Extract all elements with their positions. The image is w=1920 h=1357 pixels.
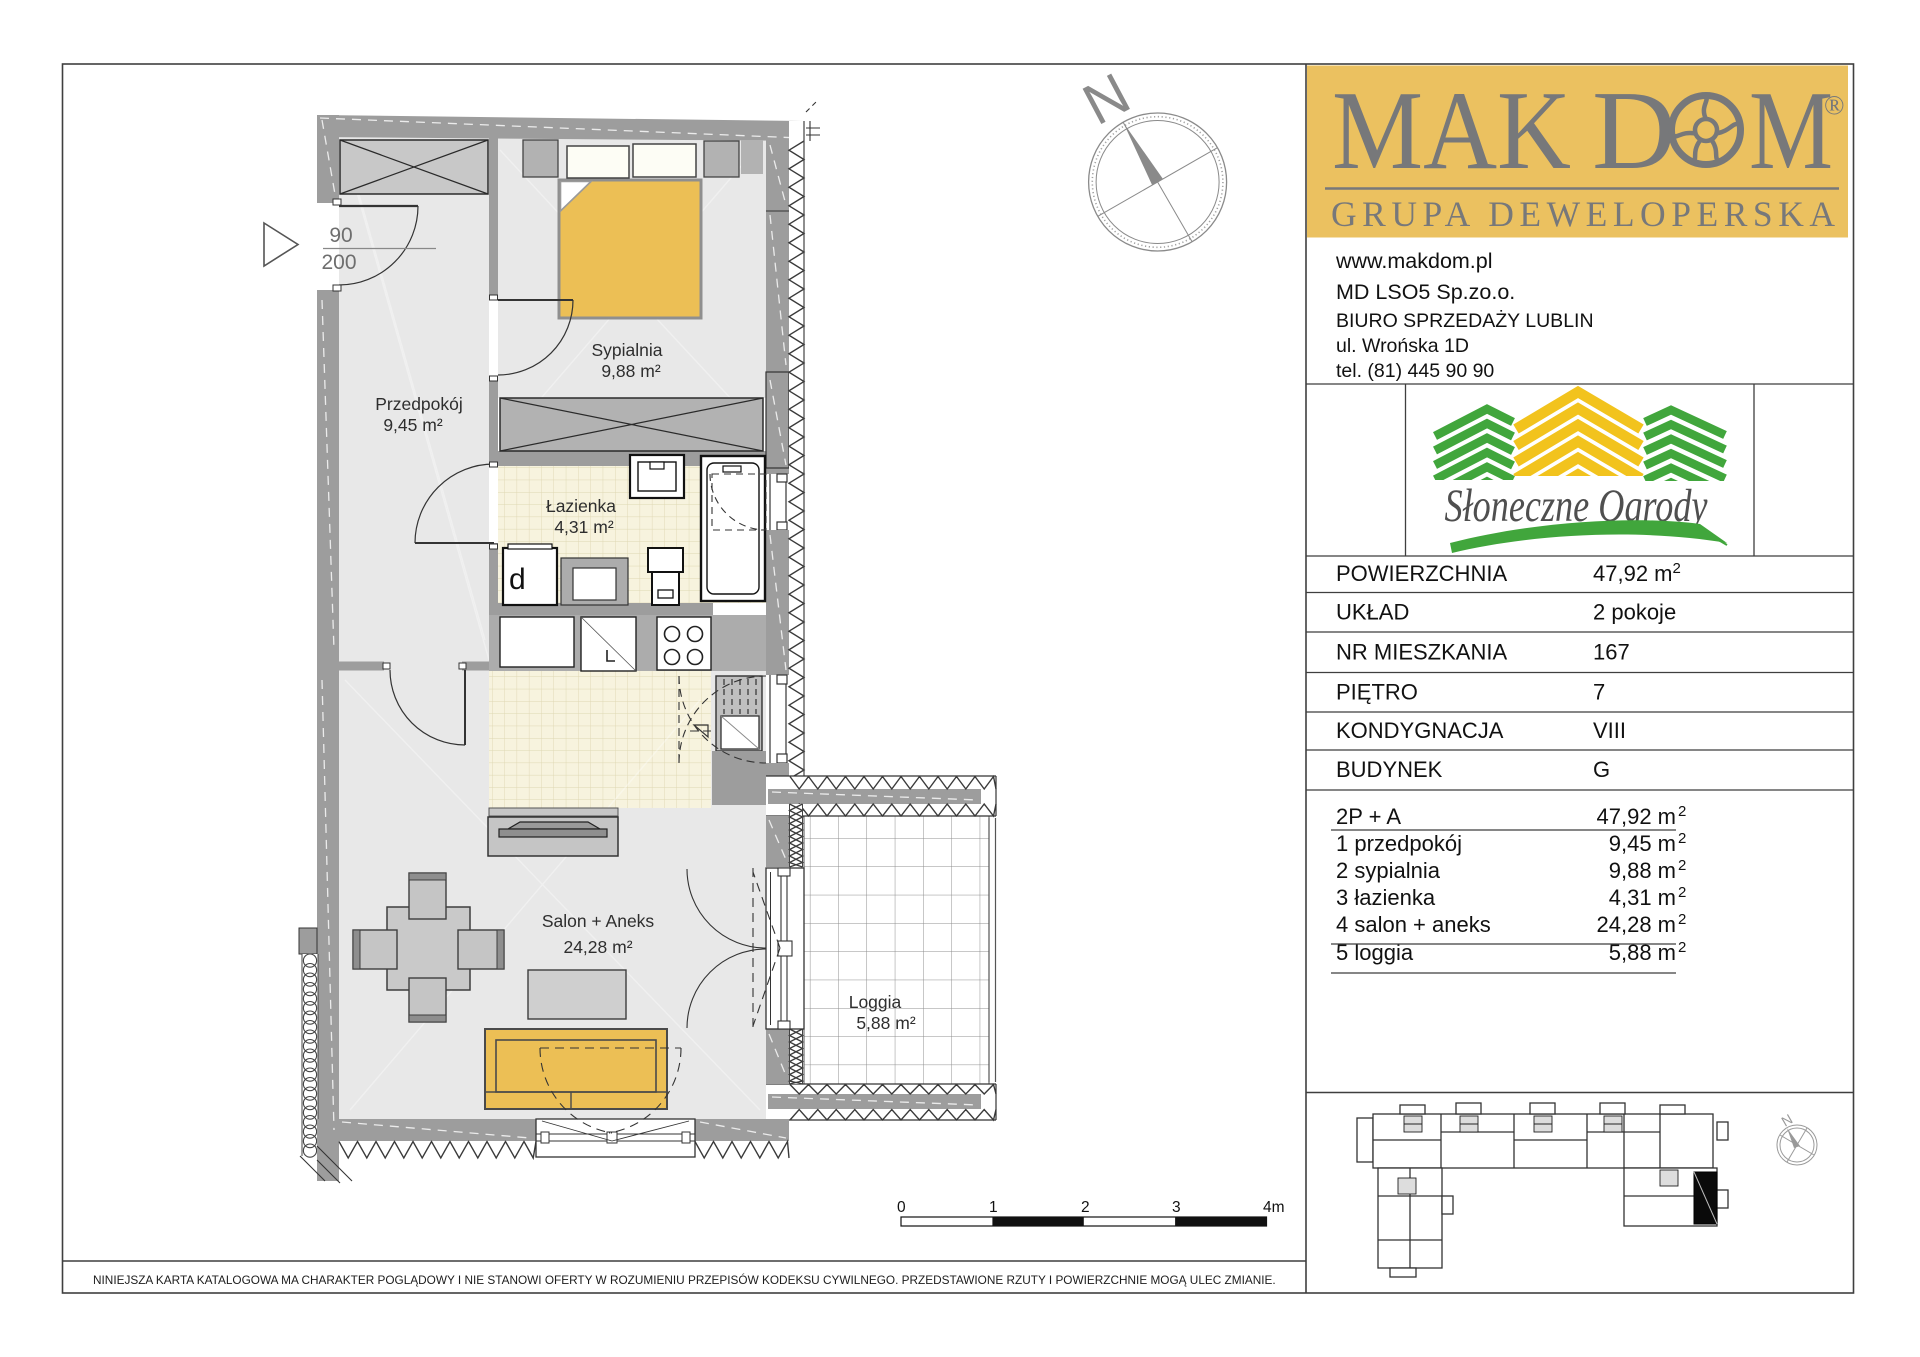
svg-text:N: N <box>1073 61 1141 138</box>
svg-text:Przedpokój: Przedpokój <box>375 394 463 414</box>
svg-text:1: 1 <box>989 1199 998 1216</box>
svg-text:2: 2 <box>1678 857 1686 874</box>
svg-text:tel. (81) 445 90 90: tel. (81) 445 90 90 <box>1336 360 1494 382</box>
svg-text:90: 90 <box>329 224 352 247</box>
svg-text:www.makdom.pl: www.makdom.pl <box>1335 249 1493 273</box>
svg-text:200: 200 <box>321 251 356 274</box>
svg-text:5,88 m²: 5,88 m² <box>856 1013 915 1033</box>
svg-text:24,28 m: 24,28 m <box>1597 912 1677 937</box>
svg-text:ul. Wrońska 1D: ul. Wrońska 1D <box>1336 335 1469 357</box>
svg-text:BUDYNEK: BUDYNEK <box>1336 757 1443 782</box>
svg-text:BIURO SPRZEDAŻY LUBLIN: BIURO SPRZEDAŻY LUBLIN <box>1336 309 1594 332</box>
svg-text:0: 0 <box>897 1199 906 1216</box>
svg-text:PIĘTRO: PIĘTRO <box>1336 680 1418 705</box>
svg-text:d: d <box>509 563 526 596</box>
svg-text:2: 2 <box>1678 884 1686 901</box>
svg-text:3 łazienka: 3 łazienka <box>1336 885 1436 910</box>
svg-text:Loggia: Loggia <box>849 992 902 1012</box>
svg-text:2: 2 <box>1678 911 1686 928</box>
svg-text:47,92 m2: 47,92 m2 <box>1593 560 1681 586</box>
svg-text:24,28 m²: 24,28 m² <box>563 937 632 957</box>
svg-text:4,31 m: 4,31 m <box>1609 885 1676 910</box>
svg-text:4m: 4m <box>1263 1199 1285 1216</box>
svg-text:1 przedpokój: 1 przedpokój <box>1336 831 1462 856</box>
svg-text:D: D <box>1592 69 1676 193</box>
svg-text:VIII: VIII <box>1593 718 1626 743</box>
svg-text:N: N <box>1779 1111 1796 1130</box>
svg-text:Łazienka: Łazienka <box>546 496 616 516</box>
svg-text:2: 2 <box>1678 830 1686 847</box>
svg-text:167: 167 <box>1593 640 1630 665</box>
svg-text:4,31 m²: 4,31 m² <box>554 517 613 537</box>
svg-text:9,88 m²: 9,88 m² <box>601 361 660 381</box>
svg-text:MD LSO5 Sp.zo.o.: MD LSO5 Sp.zo.o. <box>1336 280 1515 304</box>
svg-text:47,92 m: 47,92 m <box>1597 804 1677 829</box>
svg-text:7: 7 <box>1593 680 1605 705</box>
svg-text:9,45 m²: 9,45 m² <box>383 415 442 435</box>
svg-text:2P + A: 2P + A <box>1336 804 1401 829</box>
svg-text:4 salon + aneks: 4 salon + aneks <box>1336 912 1491 937</box>
svg-text:Salon + Aneks: Salon + Aneks <box>542 911 655 931</box>
svg-text:®: ® <box>1824 90 1845 120</box>
svg-text:2: 2 <box>1081 1199 1090 1216</box>
svg-text:2: 2 <box>1678 939 1686 956</box>
svg-text:2: 2 <box>1678 803 1686 820</box>
svg-text:UKŁAD: UKŁAD <box>1336 600 1409 625</box>
svg-text:9,45 m: 9,45 m <box>1609 831 1676 856</box>
svg-text:Sypialnia: Sypialnia <box>591 340 662 360</box>
svg-text:2 sypialnia: 2 sypialnia <box>1336 858 1441 883</box>
svg-text:POWIERZCHNIA: POWIERZCHNIA <box>1336 561 1507 586</box>
svg-text:NR MIESZKANIA: NR MIESZKANIA <box>1336 640 1507 665</box>
svg-text:9,88 m: 9,88 m <box>1609 858 1676 883</box>
svg-text:2 pokoje: 2 pokoje <box>1593 600 1676 625</box>
svg-text:3: 3 <box>1172 1199 1181 1216</box>
svg-text:MAK: MAK <box>1332 69 1571 193</box>
svg-text:KONDYGNACJA: KONDYGNACJA <box>1336 718 1504 743</box>
svg-text:NINIEJSZA KARTA KATALOGOWA MA: NINIEJSZA KARTA KATALOGOWA MA CHARAKTER … <box>93 1273 1276 1287</box>
svg-text:M: M <box>1749 69 1833 193</box>
svg-text:G: G <box>1593 757 1610 782</box>
